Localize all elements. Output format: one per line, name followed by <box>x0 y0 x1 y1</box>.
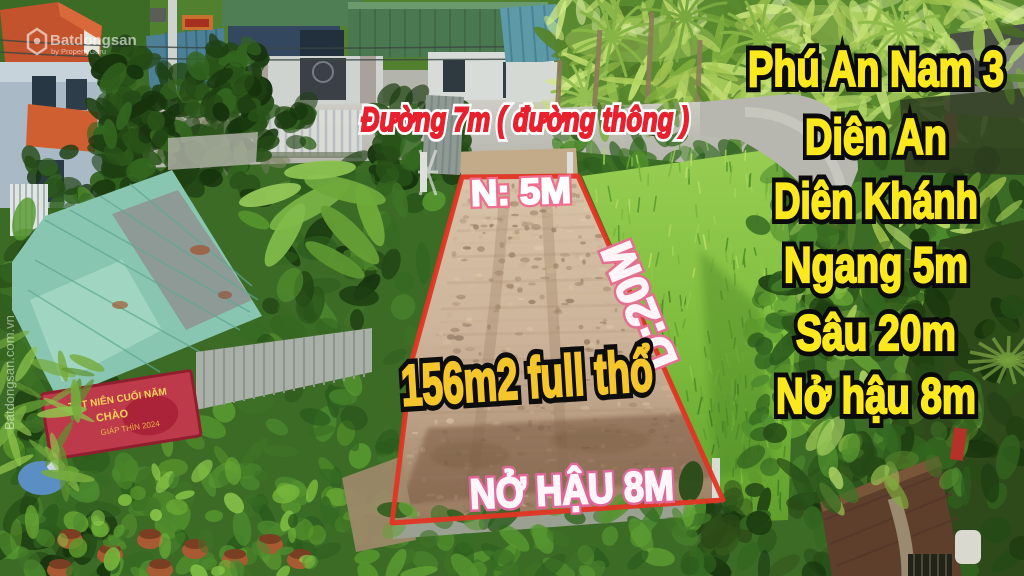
svg-text:Diên An: Diên An <box>805 109 947 165</box>
svg-text:by PropertyGuru: by PropertyGuru <box>51 47 106 56</box>
svg-text:Phú An Nam 3: Phú An Nam 3 <box>748 41 1004 97</box>
svg-text:Batdongsan.com.vn: Batdongsan.com.vn <box>2 315 17 430</box>
svg-text:N: 5M: N: 5M <box>470 169 571 213</box>
svg-text:Nở hậu 8m: Nở hậu 8m <box>776 368 976 424</box>
svg-text:Diên Khánh: Diên Khánh <box>774 173 978 229</box>
svg-text:Sâu 20m: Sâu 20m <box>796 305 956 361</box>
svg-text:Đường 7m ( đường thông ): Đường 7m ( đường thông ) <box>361 101 689 139</box>
svg-text:NỞ HẬU 8M: NỞ HẬU 8M <box>469 460 675 517</box>
svg-text:Ngang 5m: Ngang 5m <box>784 237 968 293</box>
